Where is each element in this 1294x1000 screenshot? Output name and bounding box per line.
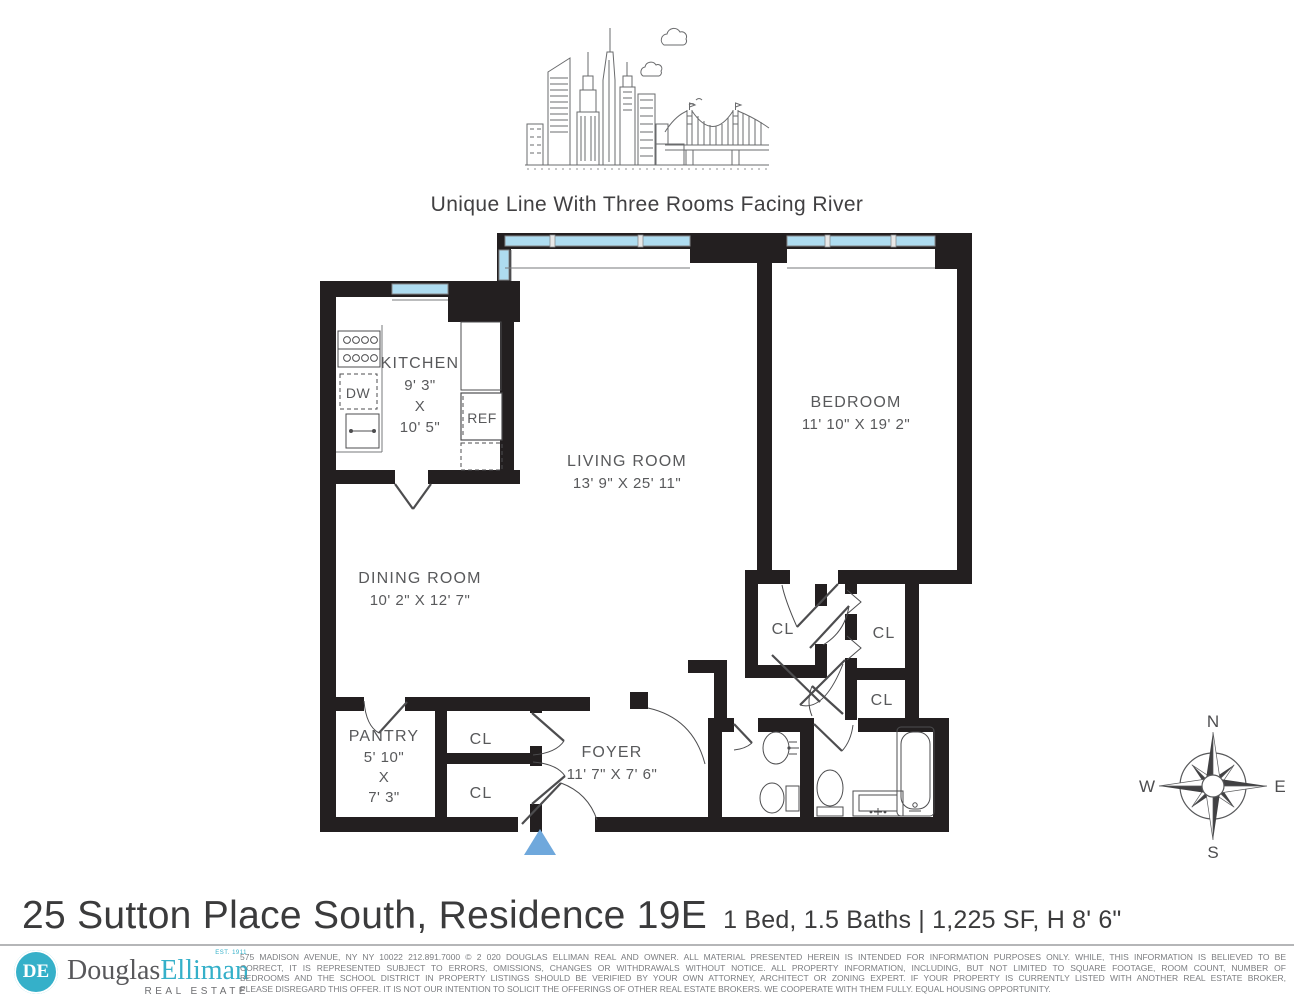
foyer-dims: 11' 7" X 7' 6" <box>567 766 658 783</box>
disclaimer-line: CORRECT, IT IS REPRESENTED SUBJECT TO ER… <box>240 963 1286 974</box>
logo-mark: DE <box>14 950 58 994</box>
listing-title-row: 25 Sutton Place South, Residence 19E 1 B… <box>22 894 1122 938</box>
vanity-sink-icon <box>853 791 903 816</box>
disclaimer: 575 MADISON AVENUE, NY NY 10022 212.891.… <box>240 952 1286 994</box>
compass-east-label: E <box>1274 777 1285 796</box>
stove-icon <box>338 331 380 367</box>
kitchen-dim1: 9' 3" <box>404 377 436 394</box>
closet-label-5: CL <box>871 692 894 709</box>
floorplan-drawing: DW REF <box>0 0 1294 1000</box>
dishwasher-label: DW <box>346 385 371 401</box>
kitchen-label: KITCHEN <box>381 355 460 372</box>
floorplan-page: Unique Line With Three Rooms Facing Rive… <box>0 0 1294 1000</box>
entry-arrow-icon <box>524 829 556 855</box>
listing-address: 25 Sutton Place South, Residence 19E <box>22 894 707 938</box>
kitchen-sink-icon <box>346 414 379 448</box>
disclaimer-line: PLEASE DISREGARD THIS OFFER. IT IS NOT O… <box>240 984 1286 995</box>
closet-label-4: CL <box>873 625 896 642</box>
disclaimer-line: BEDROOMS AND THE SCHOOL DISTRICT IN PROP… <box>240 973 1286 984</box>
logo-division-label: REAL ESTATE <box>67 987 249 997</box>
logo-name: DouglasElliman <box>67 957 249 985</box>
compass-rose-icon: N S W E <box>1139 712 1286 862</box>
listing-summary: 1 Bed, 1.5 Baths | 1,225 SF, H 8' 6" <box>723 906 1121 935</box>
logo-name-douglas: Douglas <box>67 955 160 986</box>
living-room-label: LIVING ROOM <box>567 453 687 470</box>
dishwasher-icon: DW <box>340 374 377 409</box>
kitchen-dim2: 10' 5" <box>400 419 440 436</box>
closet-label-1: CL <box>470 731 493 748</box>
closet-label-3: CL <box>772 621 795 638</box>
compass-north-label: N <box>1207 712 1219 731</box>
half-bath-sink-icon <box>763 732 799 764</box>
dining-room-dims: 10' 2" X 12' 7" <box>370 592 471 609</box>
living-room-dims: 13' 9" X 25' 11" <box>573 475 681 492</box>
divider-rule <box>0 944 1294 946</box>
pantry-dimx: X <box>379 769 390 786</box>
compass-west-label: W <box>1139 777 1155 796</box>
disclaimer-line: 575 MADISON AVENUE, NY NY 10022 212.891.… <box>240 952 1286 963</box>
pantry-dim1: 5' 10" <box>364 749 404 766</box>
logo-name-elliman: Elliman <box>160 955 249 986</box>
half-bath-toilet-icon <box>760 783 799 813</box>
bedroom-dims: 11' 10" X 19' 2" <box>802 416 910 433</box>
compass-south-label: S <box>1207 843 1218 862</box>
bathtub-icon <box>897 727 934 816</box>
refrigerator-label: REF <box>467 410 497 426</box>
pantry-label: PANTRY <box>349 728 420 745</box>
douglas-elliman-logo: DE EST. 1911 DouglasElliman REAL ESTATE <box>14 950 249 997</box>
kitchen-dimx: X <box>415 398 426 415</box>
logo-wordmark: EST. 1911 DouglasElliman REAL ESTATE <box>67 950 249 997</box>
foyer-label: FOYER <box>581 744 642 761</box>
full-bath-toilet-icon <box>817 770 843 816</box>
bedroom-label: BEDROOM <box>810 394 901 411</box>
pantry-dim2: 7' 3" <box>368 789 400 806</box>
dining-room-label: DINING ROOM <box>358 570 481 587</box>
refrigerator-icon: REF <box>461 393 502 470</box>
closet-label-2: CL <box>470 785 493 802</box>
